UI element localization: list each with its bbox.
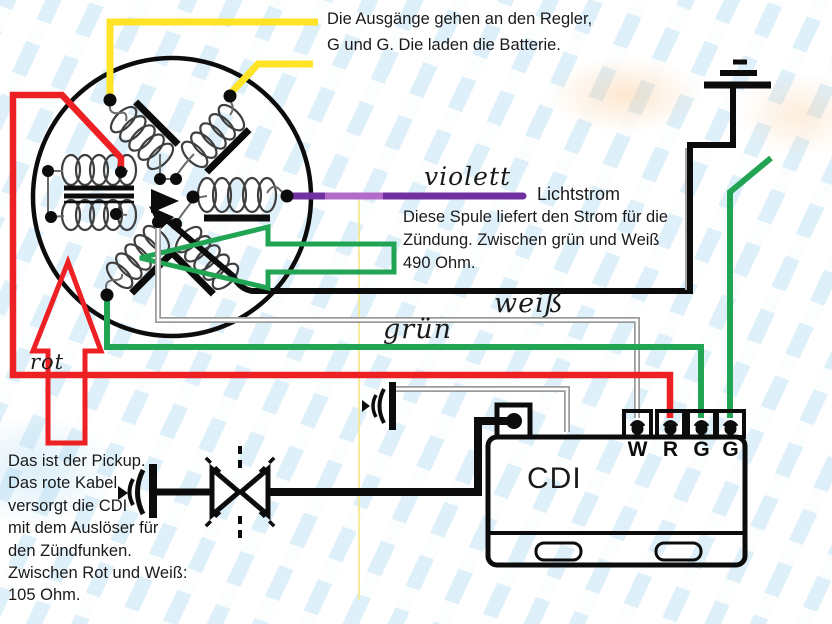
note-spule: Diese Spule liefert den Strom für die Zü… — [403, 206, 668, 275]
wire-yellow-2 — [228, 64, 313, 96]
note-pickup-line2: Das rote Kabel — [8, 472, 187, 494]
cdi-foot-left — [536, 543, 581, 560]
note-regler-line2: G und G. Die laden die Batterie. — [327, 32, 592, 58]
cdi-label: CDI — [527, 462, 582, 496]
terminal-label-r: R — [657, 438, 684, 462]
note-spule-line2: Zündung. Zwischen grün und Weiß — [403, 229, 668, 252]
label-violett: violett — [424, 162, 511, 191]
cdi-terminals — [624, 411, 744, 437]
stator-coil-right — [198, 178, 276, 218]
note-pickup-line6: Zwischen Rot und Weiß: — [8, 562, 187, 584]
note-spule-line1: Diese Spule liefert den Strom für die — [403, 206, 668, 229]
terminal-label-g1: G — [688, 438, 715, 462]
note-regler-line1: Die Ausgänge gehen an den Regler, — [327, 6, 592, 32]
note-pickup: Das ist der Pickup. Das rote Kabel verso… — [8, 450, 187, 607]
stator-coil-left-double — [62, 155, 136, 230]
note-pickup-line4: mit dem Auslöser für — [8, 517, 187, 539]
note-regler: Die Ausgänge gehen an den Regler, G und … — [327, 6, 592, 58]
terminal-label-w: W — [624, 438, 651, 462]
plug-connector-small-icon — [362, 382, 567, 432]
label-gruen: grün — [383, 314, 452, 345]
note-pickup-line1: Das ist der Pickup. — [8, 450, 187, 472]
terminal-label-g2: G — [717, 438, 744, 462]
label-weiss: weiß — [494, 288, 564, 319]
stator — [33, 58, 311, 336]
note-pickup-line3: versorgt die CDI — [8, 495, 187, 517]
wiring-diagram: Die Ausgänge gehen an den Regler, G und … — [0, 0, 832, 624]
note-spule-line3: 490 Ohm. — [403, 252, 668, 275]
label-rot: rot — [30, 350, 64, 374]
spark-gap-icon — [203, 445, 277, 540]
wire-green-2 — [730, 158, 771, 418]
cdi-foot-right — [656, 543, 701, 560]
label-lichtstrom: Lichtstrom — [537, 184, 620, 205]
note-pickup-line5: den Zündfunken. — [8, 540, 187, 562]
note-pickup-line7: 105 Ohm. — [8, 584, 187, 606]
stator-coil-topright — [178, 101, 252, 175]
ground-symbol — [704, 62, 771, 85]
